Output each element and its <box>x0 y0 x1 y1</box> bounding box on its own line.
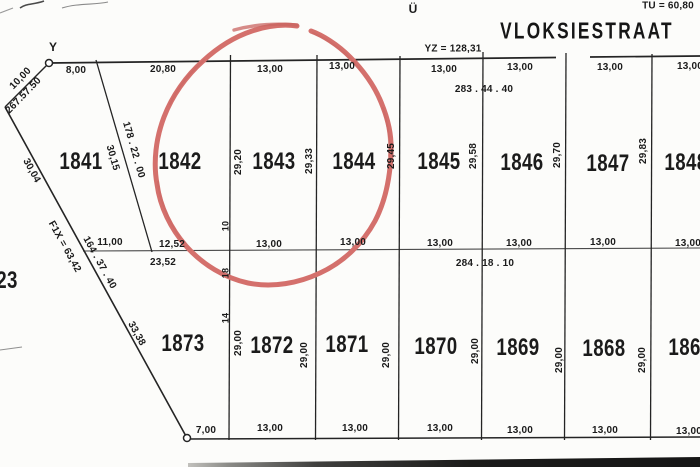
survey-point-y-label: Y <box>49 40 57 54</box>
dim-label-13-00: 13,00 <box>675 239 700 249</box>
dim-label-10: 10 <box>222 221 231 231</box>
plot-1867: 1867 <box>668 336 700 360</box>
dim-label-13-00: 13,00 <box>342 424 368 434</box>
survey-point-bottom <box>184 435 191 442</box>
dim-label-7-00: 7,00 <box>196 426 216 436</box>
dim-label-29-33: 29,33 <box>305 148 315 174</box>
plot-1870: 1870 <box>414 335 457 359</box>
dim-label-13-00: 13,00 <box>257 65 283 75</box>
dim-label-13-00: 13,00 <box>329 62 355 72</box>
dim-label-13-00: 13,00 <box>256 240 282 250</box>
plot-1846: 1846 <box>500 151 543 175</box>
dim-label-29-00: 29,00 <box>471 338 481 364</box>
dim-label-29-00: 29,00 <box>300 342 310 368</box>
dim-label-13-00: 13,00 <box>431 65 457 75</box>
plot-1873: 1873 <box>161 332 204 356</box>
dim-label-13-00: 13,00 <box>677 62 700 72</box>
dimension-tu: TU = 60,80 <box>642 1 694 12</box>
dim-label-29-70: 29,70 <box>553 142 563 168</box>
dim-label-18: 18 <box>222 268 231 278</box>
plot-1842: 1842 <box>158 150 201 174</box>
dim-label-29-20: 29,20 <box>234 149 244 175</box>
bottom-scan-bar <box>188 457 700 467</box>
dim-label-23-52: 23,52 <box>150 258 176 268</box>
plot-1872: 1872 <box>250 334 293 358</box>
survey-point-y <box>46 60 53 67</box>
plot-1844: 1844 <box>332 150 375 174</box>
cadastral-map: VLOKSIESTRAAT TU = 60,80 YZ = 128,31 Y Ü… <box>0 0 700 467</box>
dim-label-29-83: 29,83 <box>639 138 649 164</box>
dim-label-13-00: 13,00 <box>427 424 453 434</box>
dim-label-284-18-10: 284 . 18 . 10 <box>456 259 514 269</box>
dim-label-20-80: 20,80 <box>150 65 176 75</box>
dim-label-13-00: 13,00 <box>592 426 618 436</box>
dim-label-13-00: 13,00 <box>340 238 366 248</box>
dim-label-12-52: 12,52 <box>159 240 185 250</box>
plot-1845: 1845 <box>417 150 460 174</box>
dim-label-13-00: 13,00 <box>590 238 616 248</box>
plot-1847: 1847 <box>586 152 629 176</box>
street-name: VLOKSIESTRAAT <box>500 18 674 45</box>
dim-label-13-00: 13,00 <box>507 63 533 73</box>
plot-1848: 1848 <box>664 151 700 175</box>
dim-label-29-00: 29,00 <box>638 347 648 373</box>
dim-label-29-00: 29,00 <box>234 330 244 356</box>
dim-label-13-00: 13,00 <box>506 239 532 249</box>
plot-partial-23: 23 <box>0 269 18 293</box>
dim-label-8-00: 8,00 <box>66 66 86 76</box>
dim-label-13-00: 13,00 <box>676 427 700 437</box>
dim-label-29-00: 29,00 <box>555 347 565 373</box>
dimension-yz: YZ = 128,31 <box>425 44 482 55</box>
dim-label-29-58: 29,58 <box>469 143 479 169</box>
dim-label-11-00: 11,00 <box>97 238 122 248</box>
plot-1871: 1871 <box>325 333 368 357</box>
dim-label-29-00: 29,00 <box>382 342 392 368</box>
plot-1868: 1868 <box>582 337 625 361</box>
dim-label-13-00: 13,00 <box>427 239 453 249</box>
dim-label-13-00: 13,00 <box>597 63 623 73</box>
plot-1869: 1869 <box>496 336 539 360</box>
plot-1843: 1843 <box>252 150 295 174</box>
dim-label-14: 14 <box>222 313 231 323</box>
dim-label-13-00: 13,00 <box>507 426 533 436</box>
plot-1841: 1841 <box>59 150 102 174</box>
dim-label-283-44-40: 283 . 44 . 40 <box>455 85 513 95</box>
dim-label-13-00: 13,00 <box>257 424 283 434</box>
dim-label-29-45: 29,45 <box>387 143 397 169</box>
survey-point-u-label: Ü <box>409 2 418 16</box>
